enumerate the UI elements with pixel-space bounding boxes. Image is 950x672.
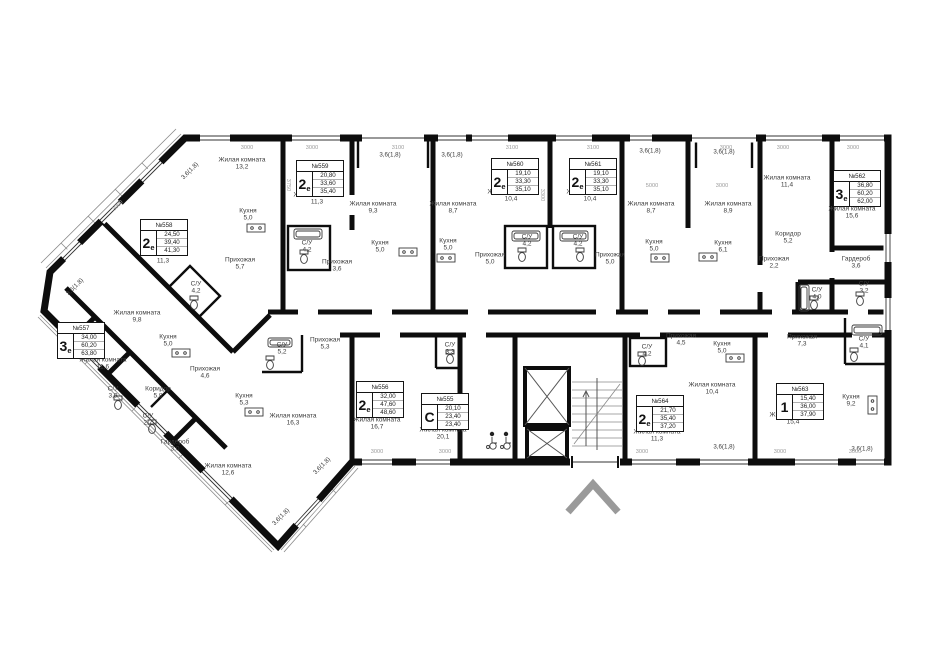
room-name: Жилая комната [689, 382, 736, 389]
apartment-area-total: 37,20 [653, 423, 683, 430]
apartment-areas: 34,0060,2063,80 [74, 334, 104, 358]
room-name: Кухня [159, 334, 176, 341]
room-label: С/У4,2 [522, 234, 533, 249]
room-area: 4,2 [191, 288, 202, 295]
apartment-type-small: е [843, 194, 847, 203]
room-area: 5,0 [371, 247, 388, 254]
room-label: Прихожая5,3 [310, 337, 340, 352]
apartment-area-reduced: 47,60 [373, 401, 403, 409]
room-area: 2,7 [143, 420, 154, 427]
apartment-number: №561 [570, 159, 616, 170]
room-label: Гардероб3,0 [161, 439, 190, 454]
room-name: С/У [812, 287, 823, 294]
apartment-type: 1 [777, 395, 793, 419]
apartment-area-living: 32,00 [373, 393, 403, 401]
apartment-areas: 15,4036,0037,90 [793, 395, 823, 419]
room-label: Прихожая5,0 [475, 252, 505, 267]
room-label: Жилая комната9,8 [114, 310, 161, 325]
apartment-panel-4[interactable]: №5612е19,1033,3035,10 [569, 158, 617, 195]
apartment-panel-0[interactable]: №5573е34,0060,2063,80 [57, 322, 105, 359]
apartment-type: 2е [570, 170, 586, 194]
room-name: Жилая комната [354, 417, 401, 424]
room-label: С/У4,2 [302, 240, 313, 255]
room-area: 3,6 [842, 263, 871, 270]
room-name: Кухня [645, 239, 662, 246]
room-area: 8,7 [628, 208, 675, 215]
balcony-label: 3,6(1,8) [713, 444, 734, 451]
room-label: Жилая комната13,2 [219, 157, 266, 172]
room-label: С/У4,2 [191, 281, 202, 296]
room-area: 5,7 [225, 264, 255, 271]
apartment-panel-1[interactable]: №5582е24,5039,4041,30 [140, 219, 188, 256]
room-label: Жилая комната11,6 [80, 357, 127, 372]
apartment-areas: 32,0047,6048,60 [373, 393, 403, 417]
apartment-panel-9[interactable]: №563115,4036,0037,90 [776, 383, 824, 420]
room-name: С/У [859, 281, 870, 288]
room-area: 4,1 [859, 343, 870, 350]
elevator-shafts [525, 368, 569, 458]
apartment-type-big: 2 [359, 397, 367, 413]
apartment-number: №555 [422, 394, 468, 405]
apartment-area-living: 34,00 [74, 334, 104, 342]
dimension-label: 3300 [539, 189, 545, 201]
apartment-areas: 20,8033,6035,40 [313, 172, 343, 196]
room-area: 10,4 [488, 196, 535, 203]
room-name: Жилая комната [705, 201, 752, 208]
apartment-area-reduced: 60,20 [850, 190, 880, 198]
dimension-label: 3000 [371, 449, 383, 455]
apartment-areas: 36,8060,2062,00 [850, 182, 880, 206]
staircase [572, 378, 622, 450]
room-name: Жилая комната [350, 201, 397, 208]
wheelchair-icon [487, 432, 512, 449]
apartment-number: №557 [58, 323, 104, 334]
apartment-area-reduced: 60,20 [74, 342, 104, 350]
room-label: Кухня5,0 [371, 240, 388, 255]
apartment-area-reduced: 35,40 [653, 415, 683, 423]
room-area: 9,8 [114, 317, 161, 324]
room-name: Прихожая [787, 334, 817, 341]
room-name: Жилая комната [205, 463, 252, 470]
room-area: 5,3 [310, 344, 340, 351]
apartment-type-small: е [646, 419, 650, 428]
room-name: Кухня [439, 238, 456, 245]
room-area: 3,6 [322, 266, 352, 273]
room-area: 3,3 [445, 349, 456, 356]
apartment-panel-6[interactable]: №5562е32,0047,6048,60 [356, 381, 404, 418]
room-area: 4,0 [812, 294, 823, 301]
room-name: Жилая комната [219, 157, 266, 164]
room-name: Прихожая [759, 256, 789, 263]
apartment-area-total: 35,10 [586, 186, 616, 193]
apartment-areas: 24,5039,4041,30 [157, 231, 187, 255]
room-area: 4,6 [190, 373, 220, 380]
room-label: Прихожая4,5 [666, 333, 696, 348]
room-area: 9,2 [842, 401, 859, 408]
apartment-number: №556 [357, 382, 403, 393]
apartment-area-reduced: 23,40 [438, 413, 468, 421]
room-area: 8,7 [430, 208, 477, 215]
apartment-type-big: 2 [143, 235, 151, 251]
entrance-arrow-icon [568, 484, 618, 512]
room-label: С/У4,0 [812, 287, 823, 302]
room-label: Прихожая5,7 [225, 257, 255, 272]
room-name: Коридор [145, 386, 171, 393]
apartment-type-small: е [579, 182, 583, 191]
apartment-panel-7[interactable]: №555С20,1023,4023,40 [421, 393, 469, 430]
room-name: Жилая комната [430, 201, 477, 208]
room-name: С/У [277, 342, 288, 349]
apartment-type: 2е [357, 393, 373, 417]
apartment-number: №560 [492, 159, 538, 170]
dimension-label: 3000 [439, 449, 451, 455]
apartment-area-living: 19,10 [508, 170, 538, 178]
apartment-area-living: 24,50 [157, 231, 187, 239]
room-label: С/У4,2 [573, 234, 584, 249]
room-name: Прихожая [190, 366, 220, 373]
room-label: Прихожая3,6 [322, 259, 352, 274]
room-area: 5,0 [595, 259, 625, 266]
room-label: Жилая комната12,6 [205, 463, 252, 478]
room-label: С/У4,2 [642, 344, 653, 359]
room-name: Гардероб [842, 256, 871, 263]
apartment-number: №562 [834, 171, 880, 182]
apartment-panel-5[interactable]: №5623е36,8060,2062,00 [833, 170, 881, 207]
room-name: С/У [445, 342, 456, 349]
apartment-type: 2е [297, 172, 313, 196]
apartment-type: 3е [58, 334, 74, 358]
room-area: 8,9 [705, 208, 752, 215]
room-area: 11,6 [80, 364, 127, 371]
room-area: 4,5 [666, 340, 696, 347]
room-name: Прихожая [595, 252, 625, 259]
room-label: Кухня9,2 [842, 394, 859, 409]
dimension-label: 3100 [392, 145, 404, 151]
apartment-area-living: 21,70 [653, 407, 683, 415]
room-label: Кухня5,0 [159, 334, 176, 349]
room-area: 5,0 [475, 259, 505, 266]
dimension-label: 3000 [849, 449, 861, 455]
room-area: 16,7 [354, 424, 401, 431]
dimension-label: 3000 [306, 145, 318, 151]
room-label: С/У3,3 [445, 342, 456, 357]
apartment-type-small: е [366, 405, 370, 414]
room-label: Прихожая5,0 [595, 252, 625, 267]
dimension-label: 3000 [241, 145, 253, 151]
room-name: Кухня [235, 393, 252, 400]
room-name: Жилая комната [764, 175, 811, 182]
room-name: Кухня [239, 208, 256, 215]
apartment-type: С [422, 405, 438, 429]
dimension-label: 3000 [636, 449, 648, 455]
interior-walls [66, 138, 888, 544]
room-name: С/У [191, 281, 202, 288]
room-area: 5,2 [775, 238, 801, 245]
apartment-type: 2е [637, 407, 653, 431]
apartment-area-reduced: 36,00 [793, 403, 823, 411]
room-area: 11,3 [294, 199, 341, 206]
room-label: С/У5,2 [277, 342, 288, 357]
room-label: Прихожая2,2 [759, 256, 789, 271]
room-label: Жилая комната16,3 [270, 413, 317, 428]
apartment-type: 2е [492, 170, 508, 194]
apartment-type-small: е [306, 184, 310, 193]
dimension-label: 3750 [285, 179, 291, 191]
apartment-area-living: 15,40 [793, 395, 823, 403]
room-label: Жилая комната9,3 [350, 201, 397, 216]
room-area: 13,2 [219, 164, 266, 171]
room-area: 11,4 [764, 182, 811, 189]
room-label: С/У2,7 [143, 413, 154, 428]
room-label: Жилая комната16,7 [354, 417, 401, 432]
room-area: 4,2 [302, 247, 313, 254]
room-area: 4,2 [642, 351, 653, 358]
apartment-area-total: 41,30 [157, 247, 187, 254]
room-name: Кухня [714, 240, 731, 247]
apartment-areas: 19,1033,3035,10 [508, 170, 538, 194]
room-name: С/У [302, 240, 313, 247]
room-label: Кухня5,0 [239, 208, 256, 223]
apartment-area-living: 36,80 [850, 182, 880, 190]
apartment-area-total: 35,10 [508, 186, 538, 193]
apartment-panel-3[interactable]: №5602е19,1033,3035,10 [491, 158, 539, 195]
room-name: С/У [522, 234, 533, 241]
room-label: Кухня5,0 [713, 341, 730, 356]
apartment-type-small: е [501, 182, 505, 191]
room-area: 3,9 [108, 393, 119, 400]
room-label: Жилая комната10,4 [689, 382, 736, 397]
apartment-areas: 21,7035,4037,20 [653, 407, 683, 431]
room-label: Кухня5,0 [439, 238, 456, 253]
room-area: 2,2 [759, 263, 789, 270]
room-name: Гардероб [161, 439, 190, 446]
apartment-number: №563 [777, 384, 823, 395]
balcony-label: 3,6(1,8) [639, 148, 660, 155]
room-name: Жилая комната [628, 201, 675, 208]
room-name: Прихожая [475, 252, 505, 259]
apartment-area-reduced: 39,40 [157, 239, 187, 247]
room-label: С/У3,9 [108, 386, 119, 401]
room-name: С/У [573, 234, 584, 241]
room-label: Кухня5,3 [235, 393, 252, 408]
apartment-type-big: 2 [572, 174, 580, 190]
apartment-panel-2[interactable]: №5592е20,8033,6035,40 [296, 160, 344, 197]
room-area: 15,4 [770, 419, 817, 426]
room-label: Жилая комната15,6 [829, 206, 876, 221]
room-area: 4,2 [522, 241, 533, 248]
room-label: Прихожая4,6 [190, 366, 220, 381]
apartment-number: №559 [297, 161, 343, 172]
entrance-door [570, 455, 620, 469]
apartment-area-living: 20,10 [438, 405, 468, 413]
apartment-type-small: е [67, 346, 71, 355]
room-label: Жилая комната8,7 [430, 201, 477, 216]
dimension-label: 3100 [587, 145, 599, 151]
apartment-area-total: 23,40 [438, 421, 468, 428]
apartment-area-total: 35,40 [313, 188, 343, 195]
apartment-type: 3е [834, 182, 850, 206]
room-name: Прихожая [225, 257, 255, 264]
dimension-label: 3000 [716, 183, 728, 189]
room-area: 6,1 [714, 247, 731, 254]
balcony-label: 3,6(1,8) [441, 152, 462, 159]
apartment-type-big: 1 [781, 399, 789, 415]
room-area: 3,2 [859, 288, 870, 295]
room-area: 3,0 [161, 446, 190, 453]
apartment-area-living: 20,80 [313, 172, 343, 180]
room-label: Кухня5,0 [645, 239, 662, 254]
dimension-label: 3000 [720, 145, 732, 151]
room-name: Кухня [713, 341, 730, 348]
apartment-area-total: 37,90 [793, 411, 823, 418]
apartment-type-big: 3 [60, 338, 68, 354]
room-name: Коридор [775, 231, 801, 238]
room-label: Кухня6,1 [714, 240, 731, 255]
room-area: 5,0 [645, 246, 662, 253]
room-area: 5,0 [439, 245, 456, 252]
room-area: 5,0 [713, 348, 730, 355]
apartment-type-big: 2 [299, 176, 307, 192]
room-label: Гардероб3,6 [842, 256, 871, 271]
apartment-type-big: 2 [494, 174, 502, 190]
room-area: 5,0 [159, 341, 176, 348]
room-area: 10,4 [689, 389, 736, 396]
windows [63, 136, 890, 526]
apartment-area-reduced: 33,30 [508, 178, 538, 186]
room-area: 5,3 [235, 400, 252, 407]
room-area: 5,8 [145, 393, 171, 400]
dimension-label: 3100 [506, 145, 518, 151]
room-name: Кухня [371, 240, 388, 247]
apartment-type-big: 2 [639, 411, 647, 427]
room-name: Прихожая [310, 337, 340, 344]
room-name: С/У [108, 386, 119, 393]
room-area: 16,3 [270, 420, 317, 427]
room-name: Жилая комната [829, 206, 876, 213]
apartment-area-total: 63,80 [74, 350, 104, 357]
room-label: Жилая комната8,7 [628, 201, 675, 216]
room-area: 20,1 [420, 434, 467, 441]
apartment-type-small: е [150, 243, 154, 252]
room-label: Коридор5,2 [775, 231, 801, 246]
apartment-panel-8[interactable]: №5642е21,7035,4037,20 [636, 395, 684, 432]
dimension-label: 3000 [847, 145, 859, 151]
room-label: Жилая комната11,4 [764, 175, 811, 190]
room-area: 12,6 [205, 470, 252, 477]
room-name: С/У [143, 413, 154, 420]
apartment-areas: 20,1023,4023,40 [438, 405, 468, 429]
apartment-area-total: 48,60 [373, 409, 403, 416]
room-area: 11,3 [634, 436, 681, 443]
room-label: Прихожая7,3 [787, 334, 817, 349]
room-area: 11,3 [140, 258, 187, 265]
room-label: С/У3,2 [859, 281, 870, 296]
room-name: С/У [642, 344, 653, 351]
room-name: Кухня [842, 394, 859, 401]
apartment-type: 2е [141, 231, 157, 255]
room-label: Коридор5,8 [145, 386, 171, 401]
apartment-type-big: 3 [836, 186, 844, 202]
apartment-area-reduced: 33,60 [313, 180, 343, 188]
apartment-area-reduced: 33,30 [586, 178, 616, 186]
apartment-type-big: С [424, 409, 434, 425]
room-name: Жилая комната [270, 413, 317, 420]
apartment-number: №558 [141, 220, 187, 231]
floor-plan: Жилая комната11,6Жилая комната9,8Кухня5,… [0, 0, 950, 672]
room-area: 7,3 [787, 341, 817, 348]
apartment-areas: 19,1033,3035,10 [586, 170, 616, 194]
dimension-label: 3000 [777, 145, 789, 151]
room-area: 5,2 [277, 349, 288, 356]
room-area: 10,4 [567, 196, 614, 203]
room-area: 4,2 [573, 241, 584, 248]
dimension-label: 3000 [774, 449, 786, 455]
apartment-area-living: 19,10 [586, 170, 616, 178]
room-name: Жилая комната [114, 310, 161, 317]
room-label: С/У4,1 [859, 336, 870, 351]
apartment-number: №564 [637, 396, 683, 407]
room-name: Прихожая [666, 333, 696, 340]
dimension-label: 5000 [646, 183, 658, 189]
room-label: Жилая комната8,9 [705, 201, 752, 216]
room-area: 15,6 [829, 213, 876, 220]
apartment-area-total: 62,00 [850, 198, 880, 205]
room-name: С/У [859, 336, 870, 343]
room-name: Прихожая [322, 259, 352, 266]
room-area: 9,3 [350, 208, 397, 215]
balcony-label: 3,6(1,8) [379, 152, 400, 159]
room-area: 5,0 [239, 215, 256, 222]
